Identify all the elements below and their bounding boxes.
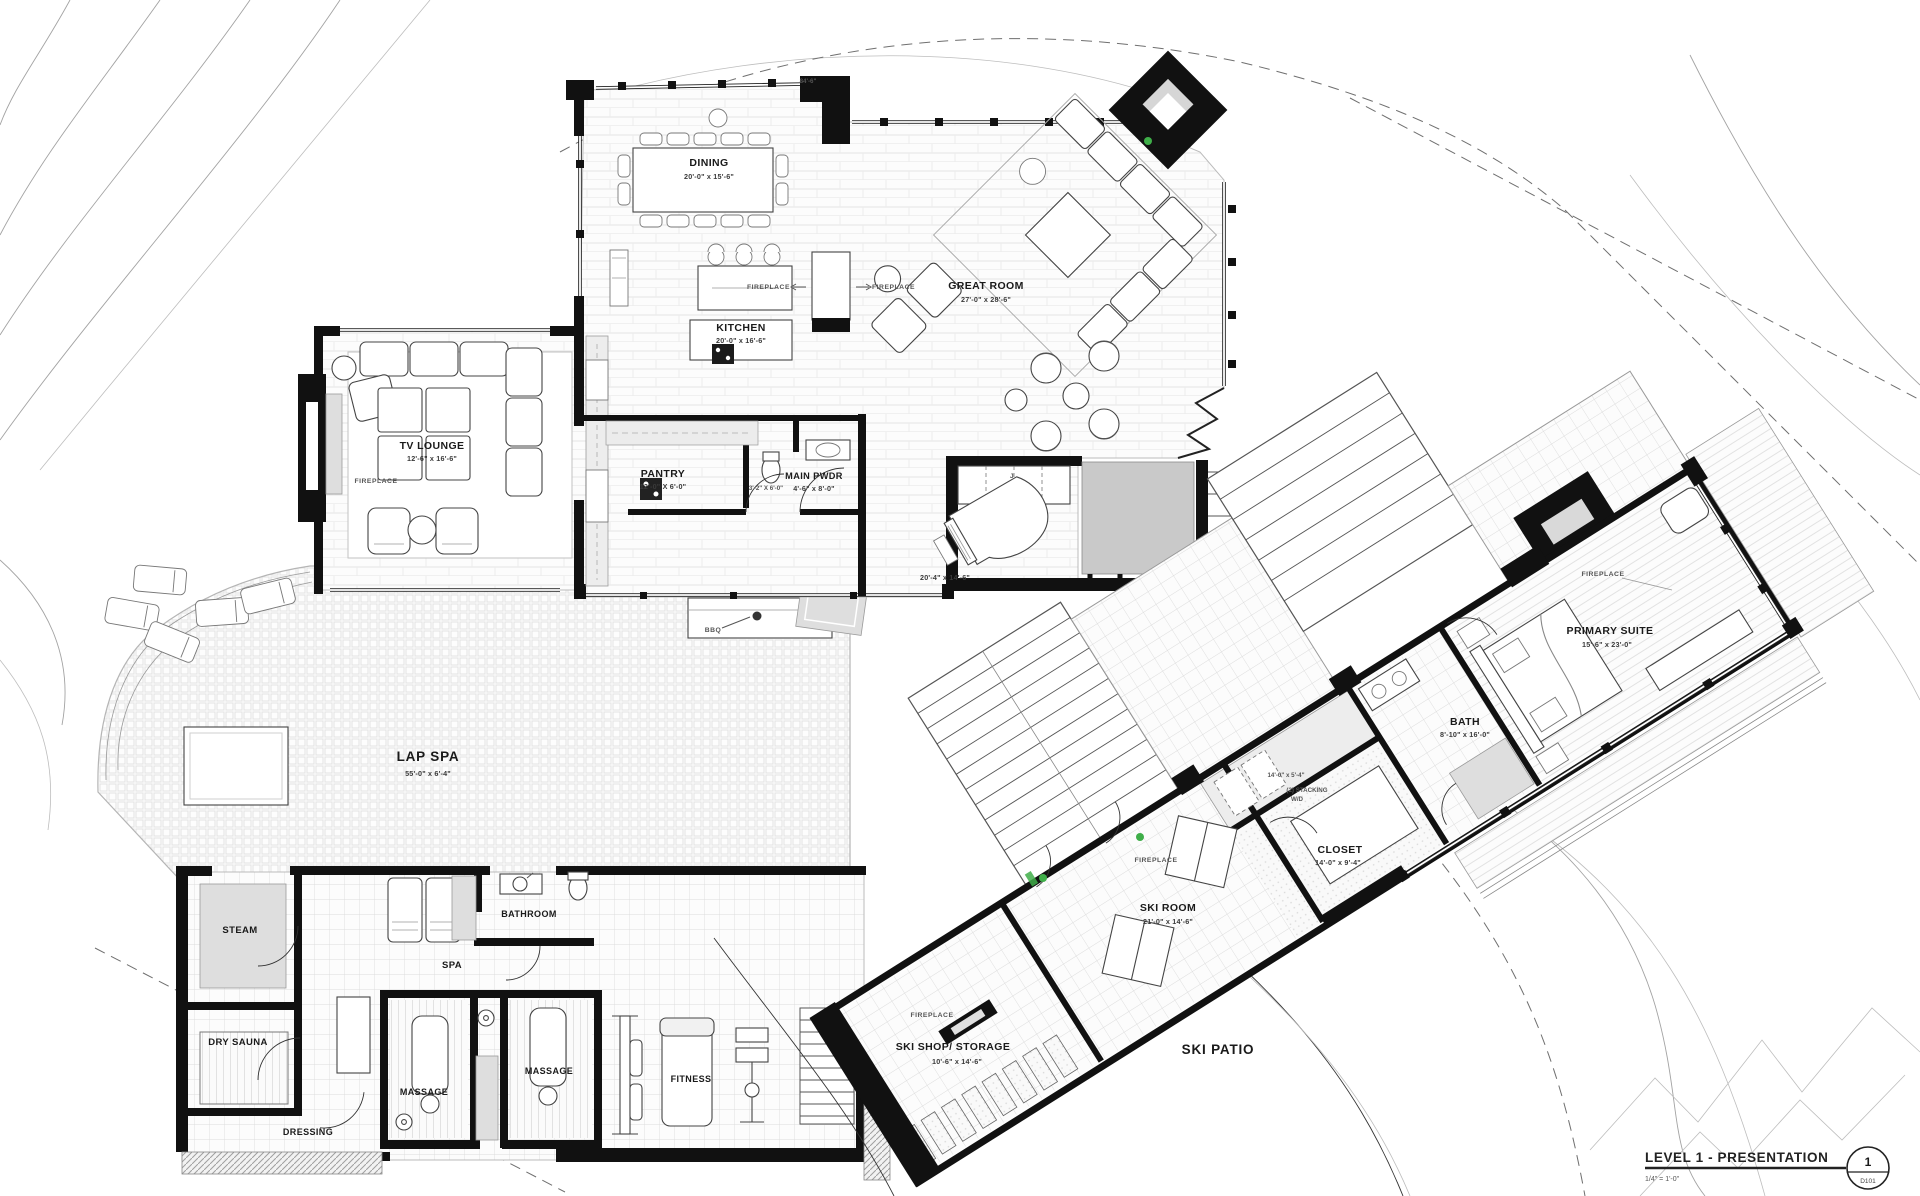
- fireplace-annotation-5: FIREPLACE: [1134, 857, 1177, 864]
- fireplace-annotation-4: FIREPLACE: [910, 1012, 953, 1019]
- tv-lounge-label: TV LOUNGE: [400, 440, 465, 452]
- main-pwdr-dims: 4'-6" x 8'-0": [793, 484, 835, 493]
- tv-lounge-dims: 12'-6" x 16'-6": [407, 454, 457, 463]
- hall-dims: 20'-4" x 14'-6": [920, 573, 970, 582]
- pantry-label: PANTRY: [641, 468, 685, 480]
- bath-dims: 8'-10" x 16'-0": [1440, 730, 1490, 739]
- fireplace-annotation-1: FIREPLACE: [747, 284, 790, 291]
- main-pwdr-label: MAIN PWDR: [785, 471, 843, 481]
- bathroom-label: BATHROOM: [501, 909, 557, 919]
- floor-plan-sheet: DINING 20'-0" x 15'-6" GREAT ROOM 27'-0"…: [0, 0, 1920, 1196]
- laundry-line2: W/D: [1291, 796, 1304, 803]
- ski-patio-label: SKI PATIO: [1182, 1042, 1255, 1057]
- mud-tag: J: [1010, 473, 1014, 480]
- sheet-title: LEVEL 1 - PRESENTATION: [1645, 1150, 1828, 1165]
- pantry-dims: 12'-0" X 6'-0": [640, 482, 687, 491]
- bbq-annotation: BBQ: [705, 627, 722, 634]
- dry-sauna-label: DRY SAUNA: [208, 1037, 268, 1048]
- fireplace-annotation-2: FIREPLACE: [872, 284, 915, 291]
- laundry-dims: 14'-0" x 5'-4": [1267, 772, 1304, 779]
- floor-plan-drawing: DINING 20'-0" x 15'-6" GREAT ROOM 27'-0"…: [0, 0, 1920, 1196]
- primary-suite-label: PRIMARY SUITE: [1567, 625, 1654, 637]
- primary-suite-dims: 15'-6" x 23'-0": [1582, 640, 1632, 649]
- massage-1-label: MASSAGE: [400, 1087, 448, 1097]
- dining-dims: 20'-0" x 15'-6": [684, 172, 734, 181]
- title-block: LEVEL 1 - PRESENTATION 1/4" = 1'-0" 1 D1…: [1645, 1147, 1889, 1189]
- sheet-id: D101: [1860, 1178, 1876, 1185]
- laundry-line1: (2) STACKING: [1286, 787, 1327, 794]
- massage-2-label: MASSAGE: [525, 1066, 573, 1076]
- ski-room-dims: 21'-0" x 14'-6": [1143, 917, 1193, 926]
- ski-shop-dims: 10'-6" x 14'-6": [932, 1057, 982, 1066]
- top-dimension: 84'-6": [800, 78, 817, 85]
- steam-label: STEAM: [222, 925, 257, 936]
- wc-dims: 3'-2" X 6'-0": [749, 485, 783, 492]
- great-room-dims: 27'-0" x 28'-6": [961, 295, 1011, 304]
- lap-spa-terrace: [98, 561, 870, 880]
- sheet-number: 1: [1865, 1155, 1872, 1169]
- fitness-label: FITNESS: [671, 1074, 712, 1084]
- kitchen-dims: 20'-0" x 16'-6": [716, 336, 766, 345]
- closet-dims: 14'-0" x 9'-4": [1315, 858, 1361, 867]
- fireplace-annotation-6: FIREPLACE: [1581, 571, 1624, 578]
- dining-label: DINING: [689, 157, 728, 169]
- lap-spa-label: LAP SPA: [397, 749, 460, 764]
- ski-shop-label: SKI SHOP/ STORAGE: [896, 1041, 1011, 1053]
- bath-label: BATH: [1450, 716, 1480, 728]
- dressing-label: DRESSING: [283, 1127, 333, 1137]
- ski-room-label: SKI ROOM: [1140, 902, 1196, 914]
- sheet-scale: 1/4" = 1'-0": [1645, 1176, 1680, 1183]
- fireplace-annotation-3: FIREPLACE: [354, 478, 397, 485]
- spa-label: SPA: [442, 960, 462, 971]
- lap-spa-dims: 55'-0" x 6'-4": [405, 769, 451, 778]
- great-room-label: GREAT ROOM: [948, 280, 1024, 292]
- closet-label: CLOSET: [1318, 844, 1363, 856]
- kitchen-label: KITCHEN: [716, 322, 765, 334]
